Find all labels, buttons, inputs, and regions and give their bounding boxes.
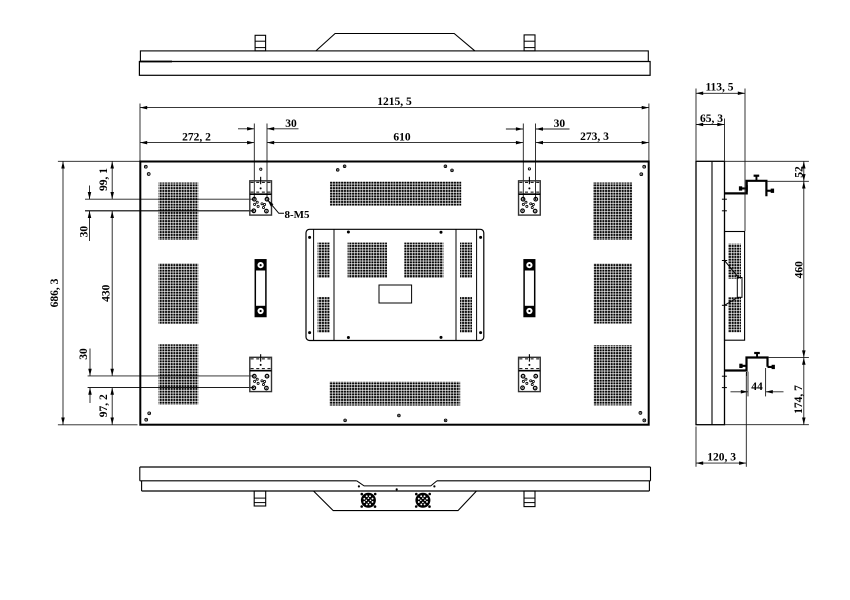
svg-text:1215, 5: 1215, 5 — [377, 96, 412, 108]
svg-text:460: 460 — [794, 261, 806, 279]
svg-text:686, 3: 686, 3 — [49, 278, 61, 307]
svg-text:174, 7: 174, 7 — [793, 385, 805, 414]
svg-text:113, 5: 113, 5 — [705, 82, 733, 94]
svg-text:97, 2: 97, 2 — [98, 394, 110, 417]
svg-text:8-M5: 8-M5 — [285, 209, 311, 221]
svg-text:272, 2: 272, 2 — [182, 131, 211, 143]
svg-text:99, 1: 99, 1 — [98, 168, 110, 191]
svg-text:65, 3: 65, 3 — [700, 113, 723, 125]
svg-text:52: 52 — [794, 166, 806, 178]
svg-text:44: 44 — [751, 381, 763, 393]
svg-text:30: 30 — [78, 348, 90, 360]
svg-text:30: 30 — [554, 118, 566, 130]
svg-text:30: 30 — [285, 118, 297, 130]
svg-text:430: 430 — [100, 284, 112, 302]
svg-text:273, 3: 273, 3 — [580, 131, 609, 143]
svg-text:120, 3: 120, 3 — [707, 452, 736, 464]
svg-text:610: 610 — [393, 131, 411, 143]
svg-text:30: 30 — [79, 226, 91, 238]
